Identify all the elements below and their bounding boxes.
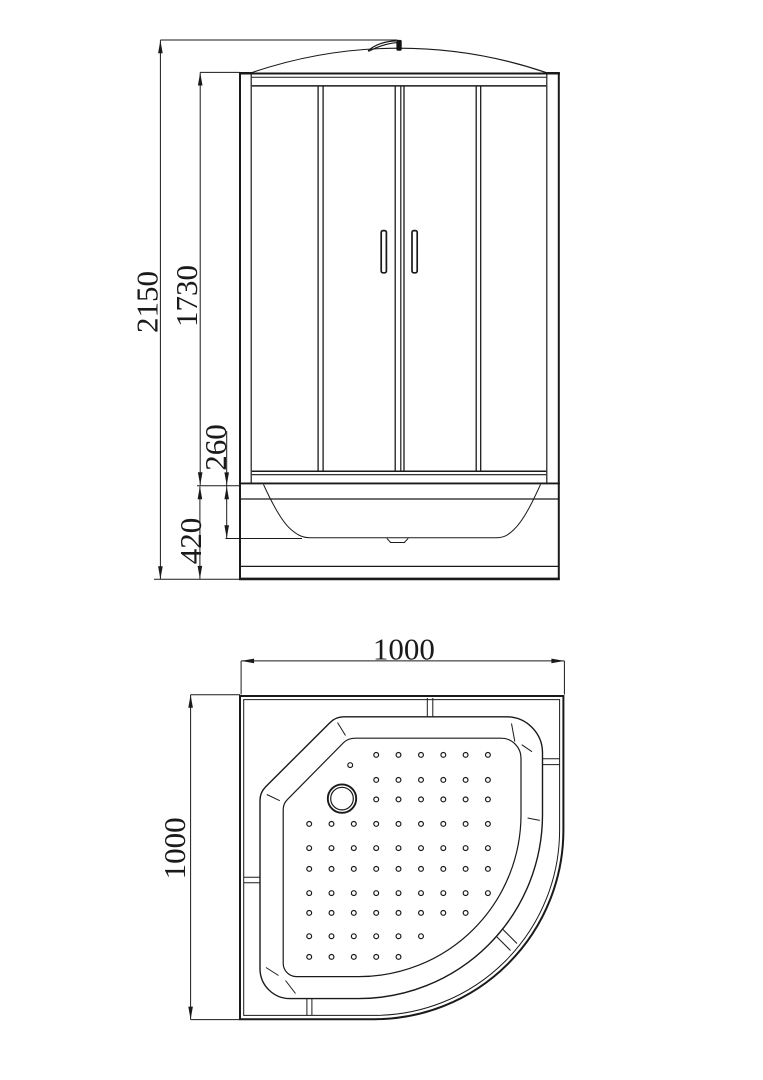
svg-text:420: 420 — [173, 518, 208, 565]
svg-text:1730: 1730 — [169, 265, 204, 327]
svg-text:1000: 1000 — [373, 632, 435, 667]
svg-text:1000: 1000 — [157, 817, 192, 879]
svg-text:2150: 2150 — [130, 271, 165, 333]
svg-text:260: 260 — [198, 424, 233, 471]
